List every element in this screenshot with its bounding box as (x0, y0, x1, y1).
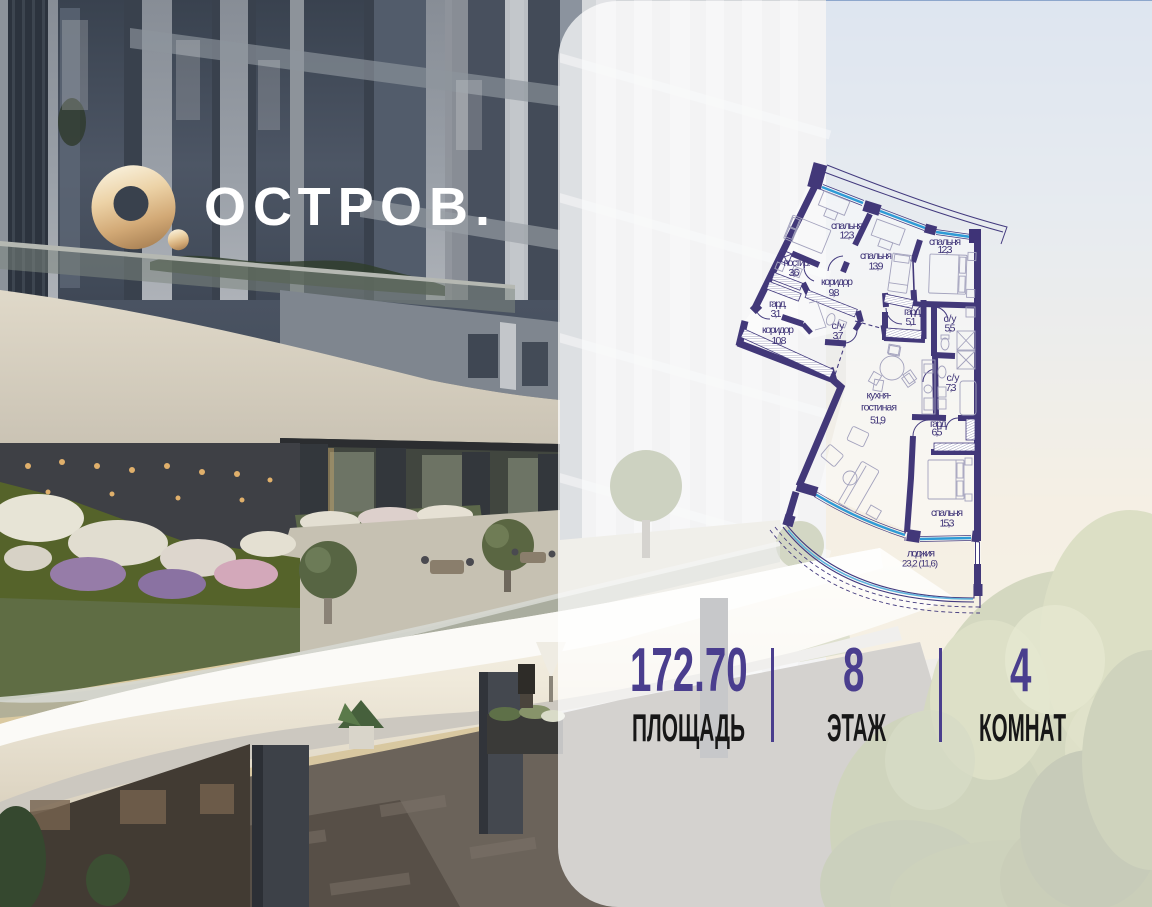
svg-text:3,6: 3,6 (789, 267, 800, 279)
svg-text:9,8: 9,8 (829, 287, 840, 299)
svg-text:12,3: 12,3 (938, 244, 953, 256)
svg-text:6,5: 6,5 (932, 427, 943, 439)
svg-text:15,3: 15,3 (940, 518, 955, 530)
svg-text:13,9: 13,9 (869, 261, 884, 273)
svg-text:10,8: 10,8 (772, 335, 787, 347)
svg-text:3,7: 3,7 (833, 330, 844, 342)
svg-text:кухня-: кухня- (867, 390, 893, 402)
svg-text:5,5: 5,5 (945, 323, 956, 335)
svg-text:51,9: 51,9 (870, 415, 886, 427)
svg-text:23,2 (11,6): 23,2 (11,6) (902, 559, 938, 570)
svg-text:5,1: 5,1 (906, 316, 917, 328)
svg-text:3,1: 3,1 (771, 308, 782, 320)
svg-text:7,3: 7,3 (946, 382, 957, 394)
svg-text:12,3: 12,3 (840, 230, 855, 242)
svg-text:гостиная: гостиная (861, 402, 897, 414)
